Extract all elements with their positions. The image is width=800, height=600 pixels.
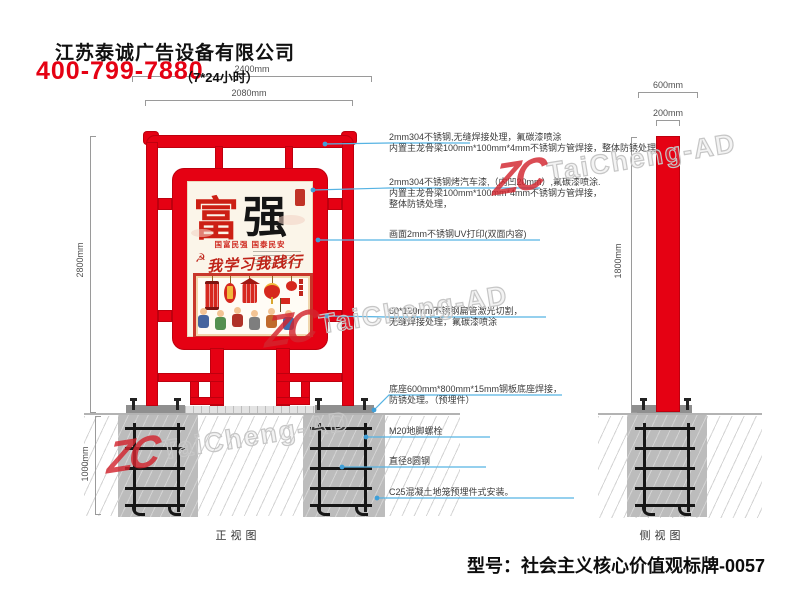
annotation-line: 无缝焊接处理，氟碳漆喷涂 [389,317,523,328]
annotation-line: 60*120mm不锈钢扁管激光切割， [389,306,523,317]
model-number: 型号：社会主义核心价值观标牌-0057 [420,552,765,578]
annotation-line: 2mm304不锈钢,无缝焊接处理，氟碳漆喷涂 [389,132,665,143]
annotation-flat-tube: 60*120mm不锈钢扁管激光切割， 无缝焊接处理，氟碳漆喷涂 [389,306,523,328]
annotation-line: 整体防锈处理， [389,199,602,210]
phone-number: 400-799-7880 [36,57,204,86]
service-hours: （7*24小时） [180,67,259,86]
annotation-print-face: 画面2mm不锈钢UV打印(双面内容) [389,229,527,240]
annotation-line: M20地脚螺栓 [389,426,443,437]
leader-lines [0,0,800,600]
annotation-line: 防锈处理。（预埋件） [389,395,562,406]
annotation-concrete: C25混凝土地笼预埋件式安装。 [389,487,514,498]
annotation-line: 内置主龙骨梁100mm*100mm*4mm不锈钢方管焊接，整体防锈处理， [389,143,665,154]
annotation-line: 画面2mm不锈钢UV打印(双面内容) [389,229,527,240]
annotation-line: 底座600mm*800mm*15mm钢板底座焊接， [389,384,562,395]
annotation-frame: 2mm304不锈钢,无缝焊接处理，氟碳漆喷涂 内置主龙骨梁100mm*100mm… [389,132,665,154]
annotation-anchor-bolt: M20地脚螺栓 [389,426,443,437]
technical-drawing-page: 江苏泰诚广告设备有限公司 400-799-7880 （7*24小时） 2400m… [0,0,800,600]
annotation-line: 直径8圆钢 [389,456,430,467]
annotation-sign-box: 2mm304不锈钢烤汽车漆,（内凹20mm）,氟碳漆喷涂. 内置主龙骨梁100m… [389,177,602,210]
annotation-base-plate: 底座600mm*800mm*15mm钢板底座焊接， 防锈处理。（预埋件） [389,384,562,406]
annotation-round-steel: 直径8圆钢 [389,456,430,467]
annotation-line: C25混凝土地笼预埋件式安装。 [389,487,514,498]
annotation-line: 2mm304不锈钢烤汽车漆,（内凹20mm）,氟碳漆喷涂. [389,177,602,188]
annotation-line: 内置主龙骨梁100mm*100mm*4mm不锈钢方管焊接， [389,188,602,199]
